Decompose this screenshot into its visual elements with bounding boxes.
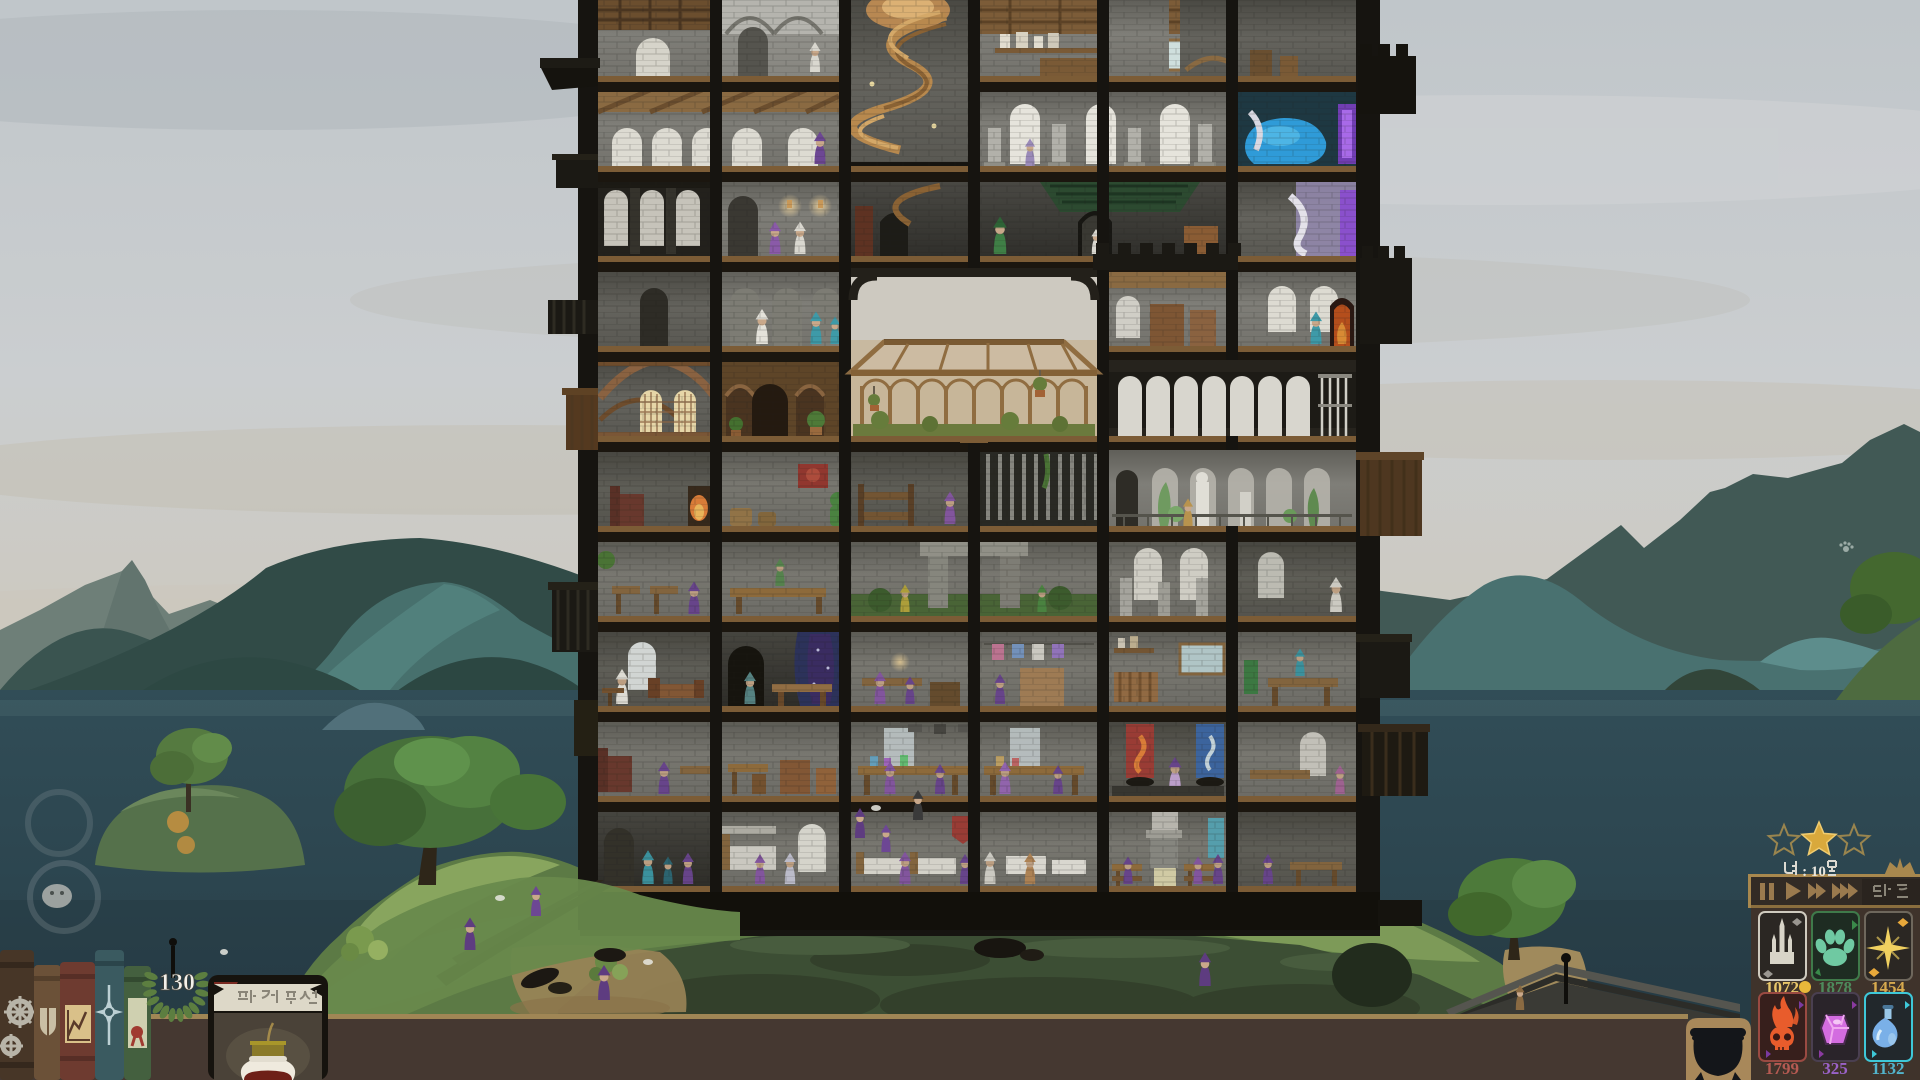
svg-text:130: 130 — [159, 970, 195, 996]
svg-text:1799: 1799 — [1765, 1059, 1799, 1078]
svg-text:: 10: : 10 — [1802, 864, 1826, 880]
svg-text:325: 325 — [1822, 1059, 1848, 1078]
svg-text:1132: 1132 — [1871, 1059, 1904, 1078]
